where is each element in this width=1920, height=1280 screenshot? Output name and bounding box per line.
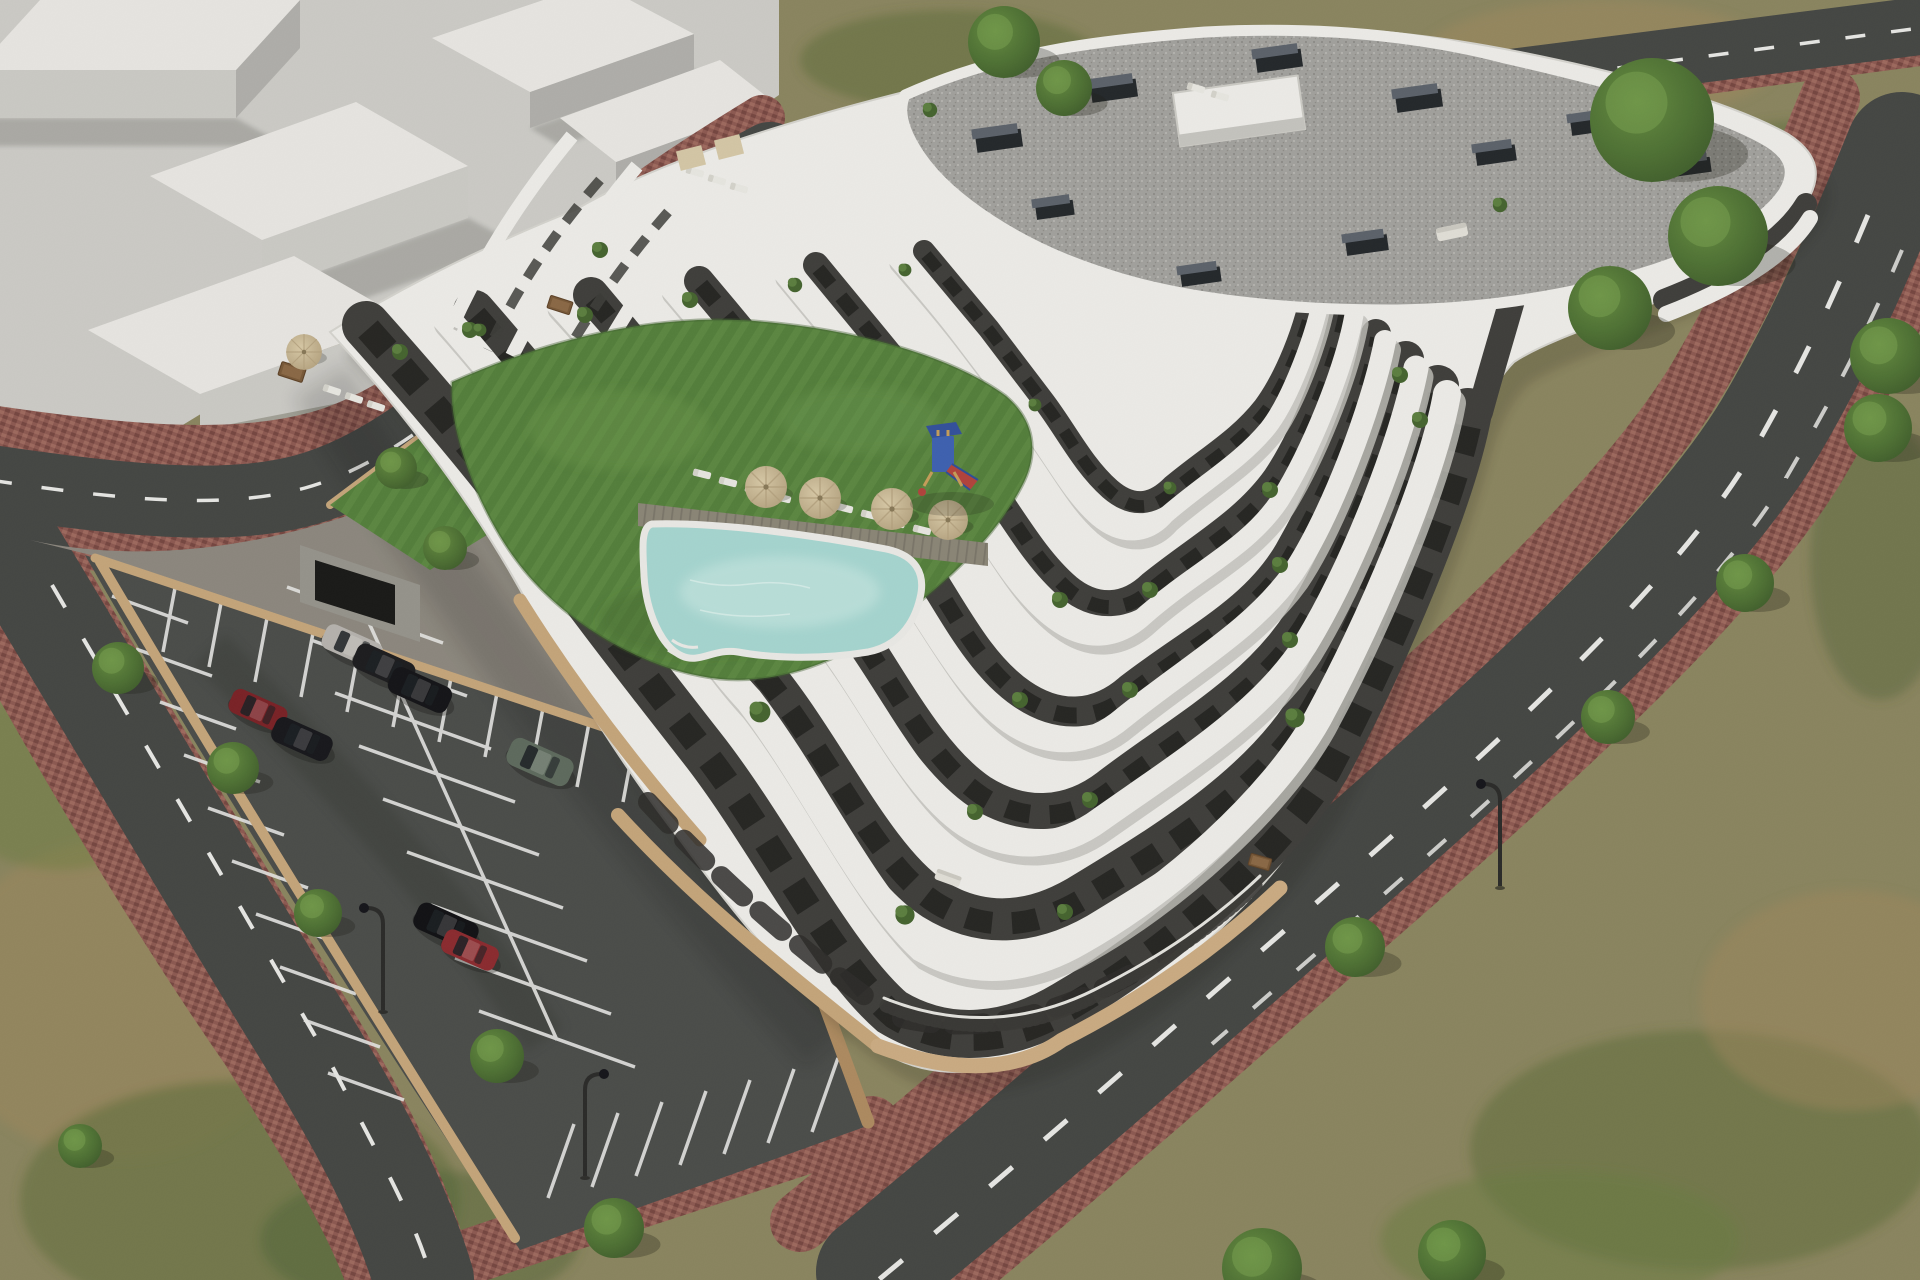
grain-overlay [0,0,1920,1280]
render-canvas [0,0,1920,1280]
architectural-render [0,0,1920,1280]
